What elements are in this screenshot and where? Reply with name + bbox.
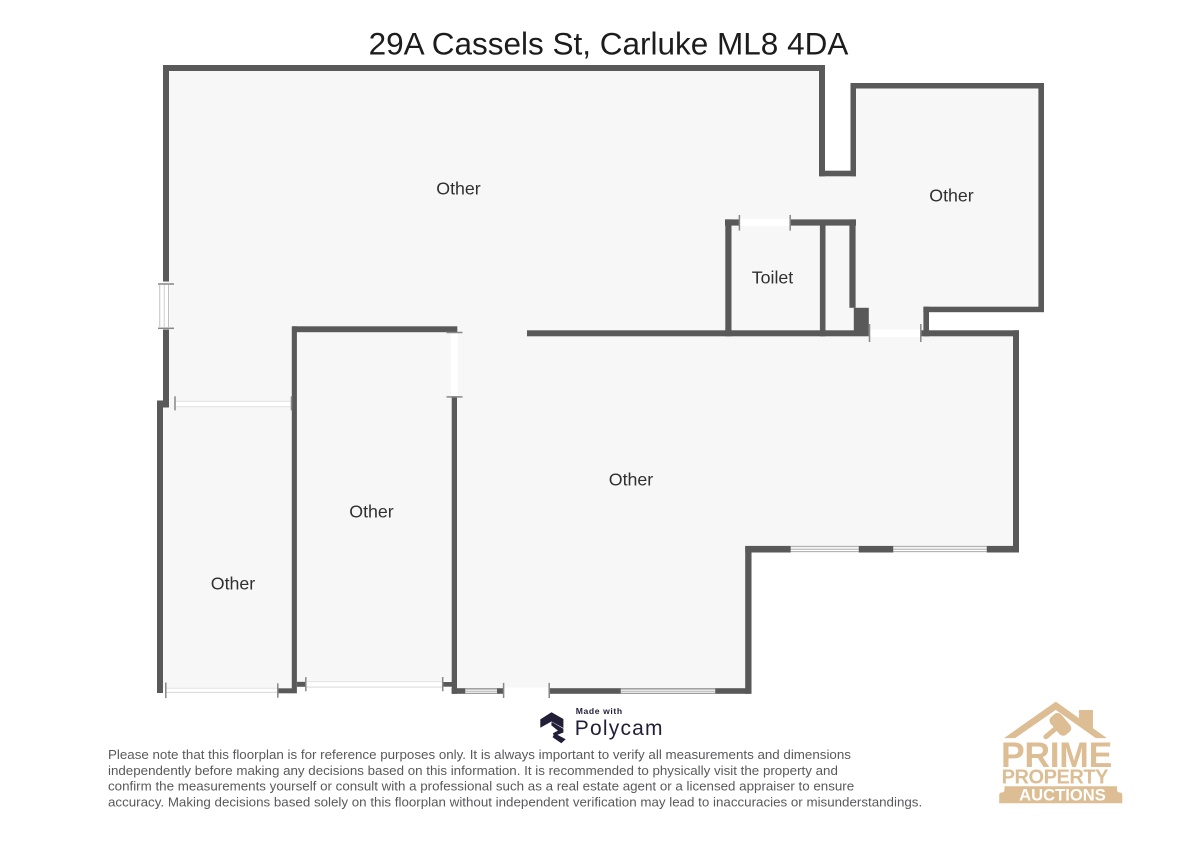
svg-text:Other: Other — [436, 179, 481, 199]
svg-text:Made with: Made with — [576, 706, 623, 716]
svg-text:29A Cassels St, Carluke ML8 4D: 29A Cassels St, Carluke ML8 4DA — [369, 26, 849, 62]
svg-text:Please note that this floorpla: Please note that this floorplan is for r… — [108, 747, 851, 762]
svg-text:Toilet: Toilet — [752, 268, 794, 288]
svg-text:confirm the measurements yours: confirm the measurements yourself or con… — [108, 779, 854, 794]
svg-text:accuracy. Making decisions bas: accuracy. Making decisions based solely … — [108, 794, 922, 809]
svg-text:Other: Other — [211, 574, 256, 594]
svg-text:Polycam: Polycam — [575, 717, 664, 740]
svg-text:Other: Other — [929, 186, 974, 206]
svg-text:independently before making an: independently before making any decision… — [108, 763, 838, 778]
svg-text:Other: Other — [609, 470, 654, 490]
svg-text:AUCTIONS: AUCTIONS — [1019, 785, 1106, 804]
svg-text:Other: Other — [349, 502, 394, 522]
